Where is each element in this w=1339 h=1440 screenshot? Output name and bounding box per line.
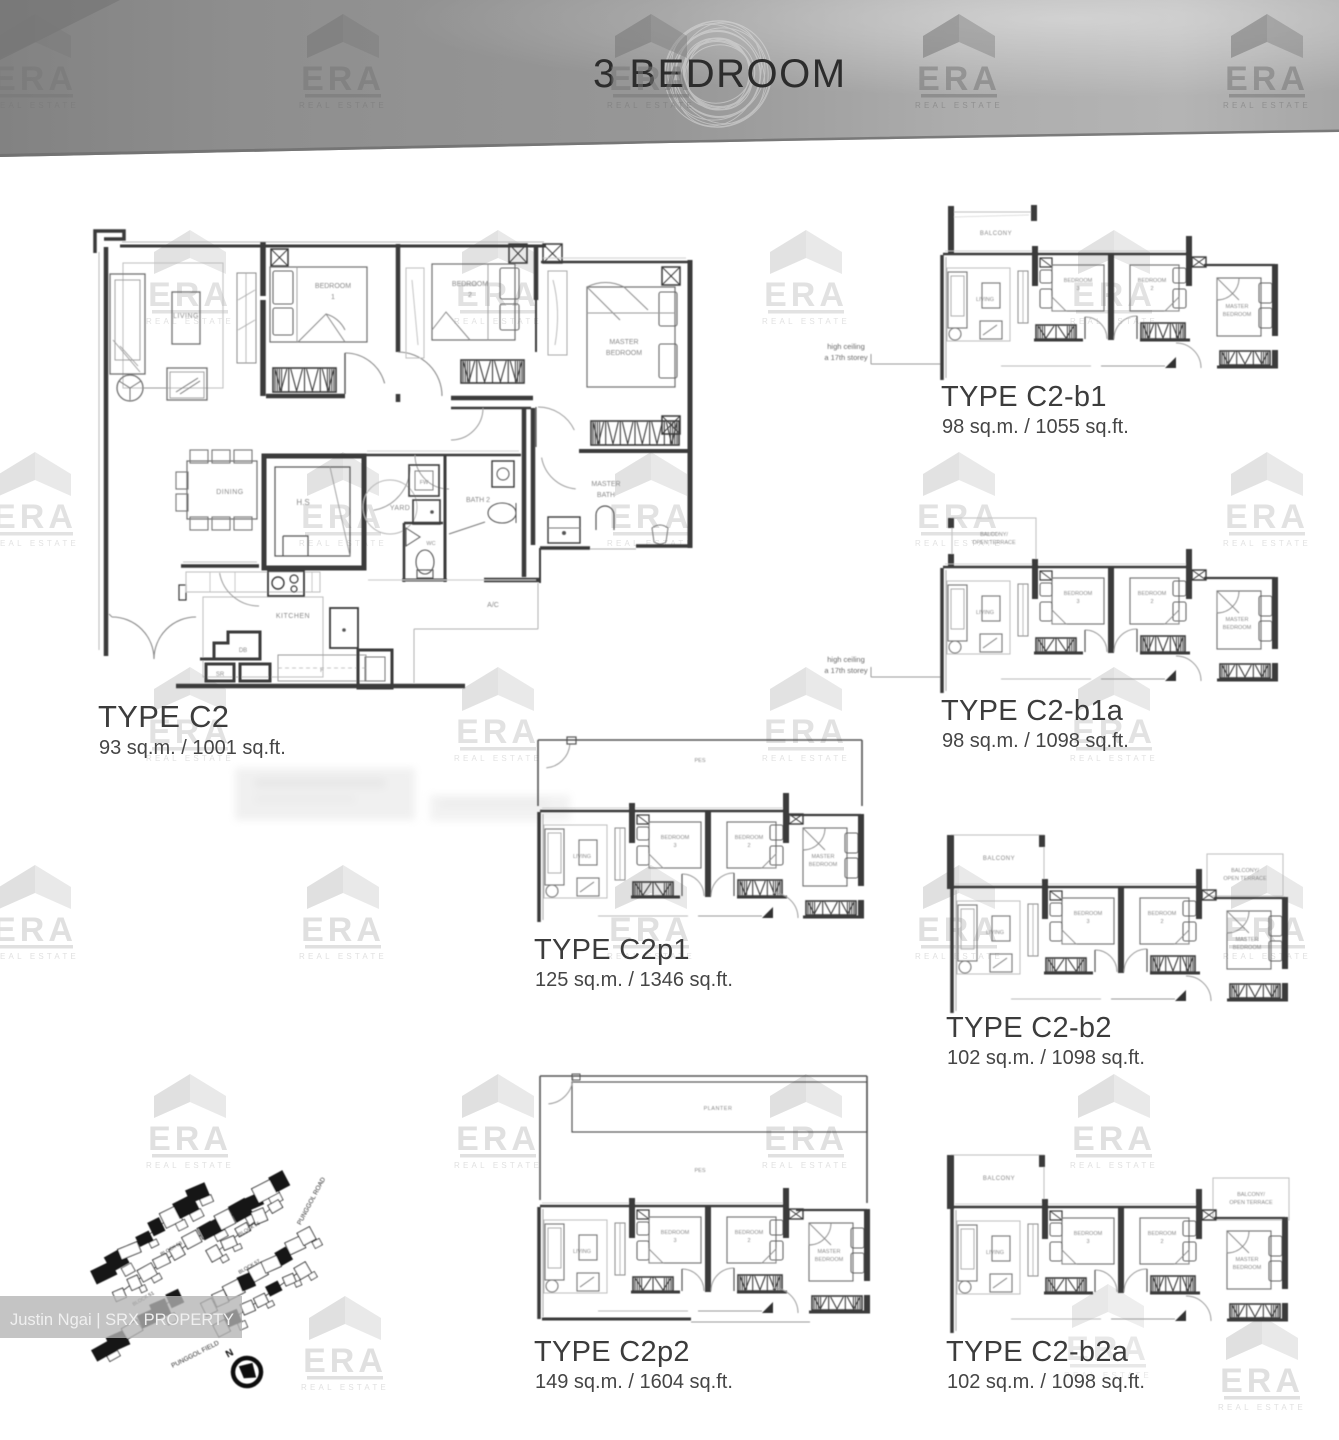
svg-text:a 17th storey: a 17th storey <box>824 666 868 675</box>
svg-text:MASTER: MASTER <box>1226 617 1249 623</box>
svg-text:3: 3 <box>673 1238 676 1244</box>
svg-text:BEDROOM: BEDROOM <box>606 350 642 357</box>
svg-text:BEDROOM: BEDROOM <box>815 1257 844 1263</box>
svg-text:2: 2 <box>1160 1239 1163 1245</box>
svg-text:2: 2 <box>747 1238 750 1244</box>
svg-text:BEDROOM: BEDROOM <box>1148 911 1177 917</box>
svg-text:TYPE C2-b1a: TYPE C2-b1a <box>941 695 1124 727</box>
svg-text:TYPE C2: TYPE C2 <box>98 699 229 734</box>
svg-text:BEDROOM: BEDROOM <box>809 862 838 868</box>
svg-text:TYPE C2-b1: TYPE C2-b1 <box>941 381 1107 413</box>
svg-text:FW: FW <box>420 480 429 486</box>
svg-text:LIVING: LIVING <box>976 610 994 616</box>
svg-text:BATH 2: BATH 2 <box>466 497 490 504</box>
svg-text:BALCONY/: BALCONY/ <box>980 532 1008 538</box>
svg-text:MASTER: MASTER <box>1226 304 1249 310</box>
svg-text:3: 3 <box>1076 286 1079 292</box>
svg-text:SR: SR <box>216 672 225 678</box>
svg-text:F: F <box>320 668 324 674</box>
svg-text:DB: DB <box>239 648 247 654</box>
svg-text:BEDROOM: BEDROOM <box>1138 591 1167 597</box>
svg-text:OPEN TERRACE: OPEN TERRACE <box>1229 1200 1273 1206</box>
svg-text:LIVING: LIVING <box>986 1250 1004 1256</box>
svg-text:BALCONY: BALCONY <box>983 1176 1015 1182</box>
svg-text:BEDROOM: BEDROOM <box>1223 625 1252 631</box>
svg-text:a 17th storey: a 17th storey <box>824 353 868 362</box>
svg-text:DINING: DINING <box>216 489 244 496</box>
svg-text:1: 1 <box>331 294 335 301</box>
svg-text:2: 2 <box>1160 919 1163 925</box>
svg-text:MASTER: MASTER <box>609 339 638 346</box>
svg-text:PES: PES <box>694 758 705 764</box>
svg-text:KITCHEN: KITCHEN <box>276 613 310 620</box>
svg-text:BALCONY: BALCONY <box>983 856 1015 862</box>
svg-text:high ceiling: high ceiling <box>827 655 865 664</box>
svg-text:TYPE C2-b2a: TYPE C2-b2a <box>946 1336 1129 1368</box>
svg-text:LIVING: LIVING <box>173 313 199 320</box>
svg-text:MASTER: MASTER <box>818 1249 841 1255</box>
svg-text:BEDROOM: BEDROOM <box>452 281 488 288</box>
svg-text:149 sq.m. / 1604 sq.ft.: 149 sq.m. / 1604 sq.ft. <box>535 1371 733 1393</box>
svg-text:BEDROOM: BEDROOM <box>1223 312 1252 318</box>
svg-text:2: 2 <box>468 292 472 299</box>
svg-text:BEDROOM: BEDROOM <box>1074 1231 1103 1237</box>
svg-text:PES: PES <box>694 1168 705 1174</box>
svg-text:BEDROOM: BEDROOM <box>1074 911 1103 917</box>
svg-text:BEDROOM: BEDROOM <box>735 1230 764 1236</box>
svg-text:LIVING: LIVING <box>986 930 1004 936</box>
svg-text:Justin Ngai | SRX PROPERTY: Justin Ngai | SRX PROPERTY <box>10 1311 234 1329</box>
svg-text:YARD: YARD <box>390 505 410 512</box>
svg-text:OPEN TERRACE: OPEN TERRACE <box>1223 876 1267 882</box>
svg-text:2: 2 <box>1150 286 1153 292</box>
svg-text:high ceiling: high ceiling <box>827 342 865 351</box>
svg-text:102 sq.m. / 1098 sq.ft.: 102 sq.m. / 1098 sq.ft. <box>947 1371 1145 1393</box>
svg-text:LIVING: LIVING <box>573 1249 591 1255</box>
svg-text:LIVING: LIVING <box>976 297 994 303</box>
svg-text:TYPE C2-b2: TYPE C2-b2 <box>946 1012 1112 1044</box>
svg-text:BALCONY: BALCONY <box>980 231 1012 237</box>
svg-text:BEDROOM: BEDROOM <box>1138 278 1167 284</box>
svg-text:PLANTER: PLANTER <box>704 1106 733 1112</box>
svg-text:2: 2 <box>747 843 750 849</box>
svg-text:98 sq.m. / 1055 sq.ft.: 98 sq.m. / 1055 sq.ft. <box>942 416 1129 438</box>
svg-text:BALCONY/: BALCONY/ <box>1237 1192 1265 1198</box>
svg-text:H.S: H.S <box>296 498 309 507</box>
svg-text:102 sq.m. / 1098 sq.ft.: 102 sq.m. / 1098 sq.ft. <box>947 1047 1145 1069</box>
svg-text:BEDROOM: BEDROOM <box>315 283 351 290</box>
svg-text:2: 2 <box>1150 599 1153 605</box>
svg-text:125 sq.m. / 1346 sq.ft.: 125 sq.m. / 1346 sq.ft. <box>535 969 733 991</box>
svg-text:BEDROOM: BEDROOM <box>1064 591 1093 597</box>
svg-text:3: 3 <box>1086 919 1089 925</box>
svg-text:A/C: A/C <box>487 602 499 609</box>
svg-text:BEDROOM: BEDROOM <box>1233 1265 1262 1271</box>
svg-text:98 sq.m. / 1098 sq.ft.: 98 sq.m. / 1098 sq.ft. <box>942 730 1129 752</box>
svg-text:OPEN TERRACE: OPEN TERRACE <box>972 540 1016 546</box>
svg-text:MASTER: MASTER <box>812 854 835 860</box>
svg-text:BEDROOM: BEDROOM <box>735 835 764 841</box>
svg-text:MASTER: MASTER <box>1236 937 1259 943</box>
svg-text:BALCONY/: BALCONY/ <box>1231 868 1259 874</box>
svg-text:3: 3 <box>1076 599 1079 605</box>
svg-text:WC: WC <box>426 541 435 547</box>
svg-text:3: 3 <box>673 843 676 849</box>
svg-text:TYPE C2p1: TYPE C2p1 <box>534 934 690 966</box>
svg-text:BEDROOM: BEDROOM <box>661 835 690 841</box>
svg-text:MASTER: MASTER <box>1236 1257 1259 1263</box>
svg-text:TYPE C2p2: TYPE C2p2 <box>534 1336 690 1368</box>
svg-text:BEDROOM: BEDROOM <box>1064 278 1093 284</box>
svg-text:BATH: BATH <box>597 492 615 499</box>
svg-text:3: 3 <box>1086 1239 1089 1245</box>
svg-text:LIVING: LIVING <box>573 854 591 860</box>
svg-text:BEDROOM: BEDROOM <box>1148 1231 1177 1237</box>
svg-text:MASTER: MASTER <box>591 481 620 488</box>
svg-text:93 sq.m. / 1001 sq.ft.: 93 sq.m. / 1001 sq.ft. <box>99 737 286 759</box>
svg-text:BEDROOM: BEDROOM <box>661 1230 690 1236</box>
svg-text:BEDROOM: BEDROOM <box>1233 945 1262 951</box>
